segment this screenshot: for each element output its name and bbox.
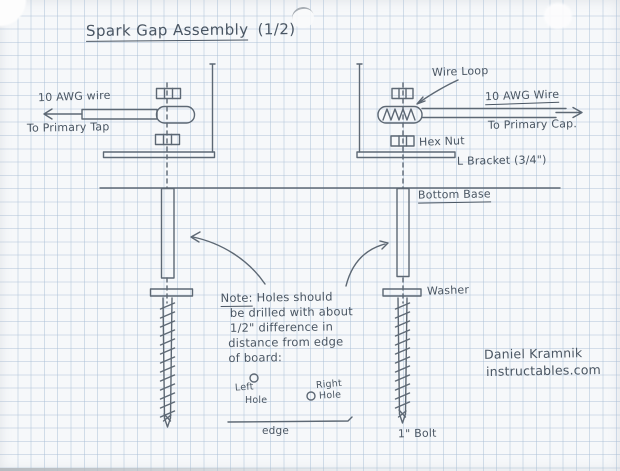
wire-loop-arrow (417, 80, 458, 104)
page-title: Spark Gap Assembly (1/2) (86, 21, 296, 39)
note-line-2: be drilled with about (230, 304, 371, 321)
edge-label: edge (262, 426, 289, 438)
left-bolt-thread (161, 298, 175, 418)
left-top-hex-nut (157, 89, 181, 99)
signature-site: instructables.com (486, 363, 601, 379)
note-line-5: of board: (228, 349, 371, 366)
left-destination-label: To Primary Tap (27, 121, 110, 135)
washer-label: Washer (427, 284, 470, 298)
signature-name: Daniel Kramnik (484, 346, 583, 361)
right-washer (383, 289, 421, 296)
right-destination-label: To Primary Cap. (488, 118, 577, 132)
bolt-label: 1" Bolt (398, 428, 437, 441)
wire-loop-label: Wire Loop (432, 65, 489, 79)
page-title-suffix: (1/2) (258, 20, 296, 38)
left-wire-label: 10 AWG wire (38, 90, 111, 105)
l-bracket-label: L Bracket (3/4") (457, 154, 547, 168)
left-hole-label-line1: Left (235, 382, 254, 394)
diagram-drawing (0, 0, 620, 471)
right-wire-label: 10 AWG Wire (485, 89, 560, 106)
graph-paper-page: Spark Gap Assembly (1/2) 10 AWG wire To … (0, 0, 620, 471)
note-arrow-right (346, 241, 388, 286)
note-keyword: Note: (220, 291, 252, 307)
note-arrow-left (191, 232, 265, 284)
right-bolt-shaft (397, 189, 409, 277)
note-line-1-text: Holes should (256, 289, 332, 304)
page-title-text: Spark Gap Assembly (86, 20, 249, 41)
right-wire-and-arrow (422, 108, 582, 118)
left-bolt-shaft (162, 189, 175, 279)
left-wire-and-arrow (44, 109, 157, 119)
right-bolt-thread (396, 298, 410, 414)
note-block: Note: Holes should be drilled with about… (220, 289, 371, 366)
left-hole-label-line2: Hole (245, 396, 267, 406)
right-hole-label-line2: Hole (319, 390, 342, 402)
bottom-base-label: Bottom Base (418, 188, 491, 203)
left-washer (151, 289, 193, 296)
left-threaded-rod (157, 107, 195, 124)
board-edge-line (228, 417, 352, 422)
right-threaded-rod-with-wire-loop (378, 107, 422, 124)
right-hole-circle (307, 392, 315, 400)
left-l-bracket (104, 64, 216, 158)
hex-nut-label: Hex Nut (419, 135, 465, 149)
